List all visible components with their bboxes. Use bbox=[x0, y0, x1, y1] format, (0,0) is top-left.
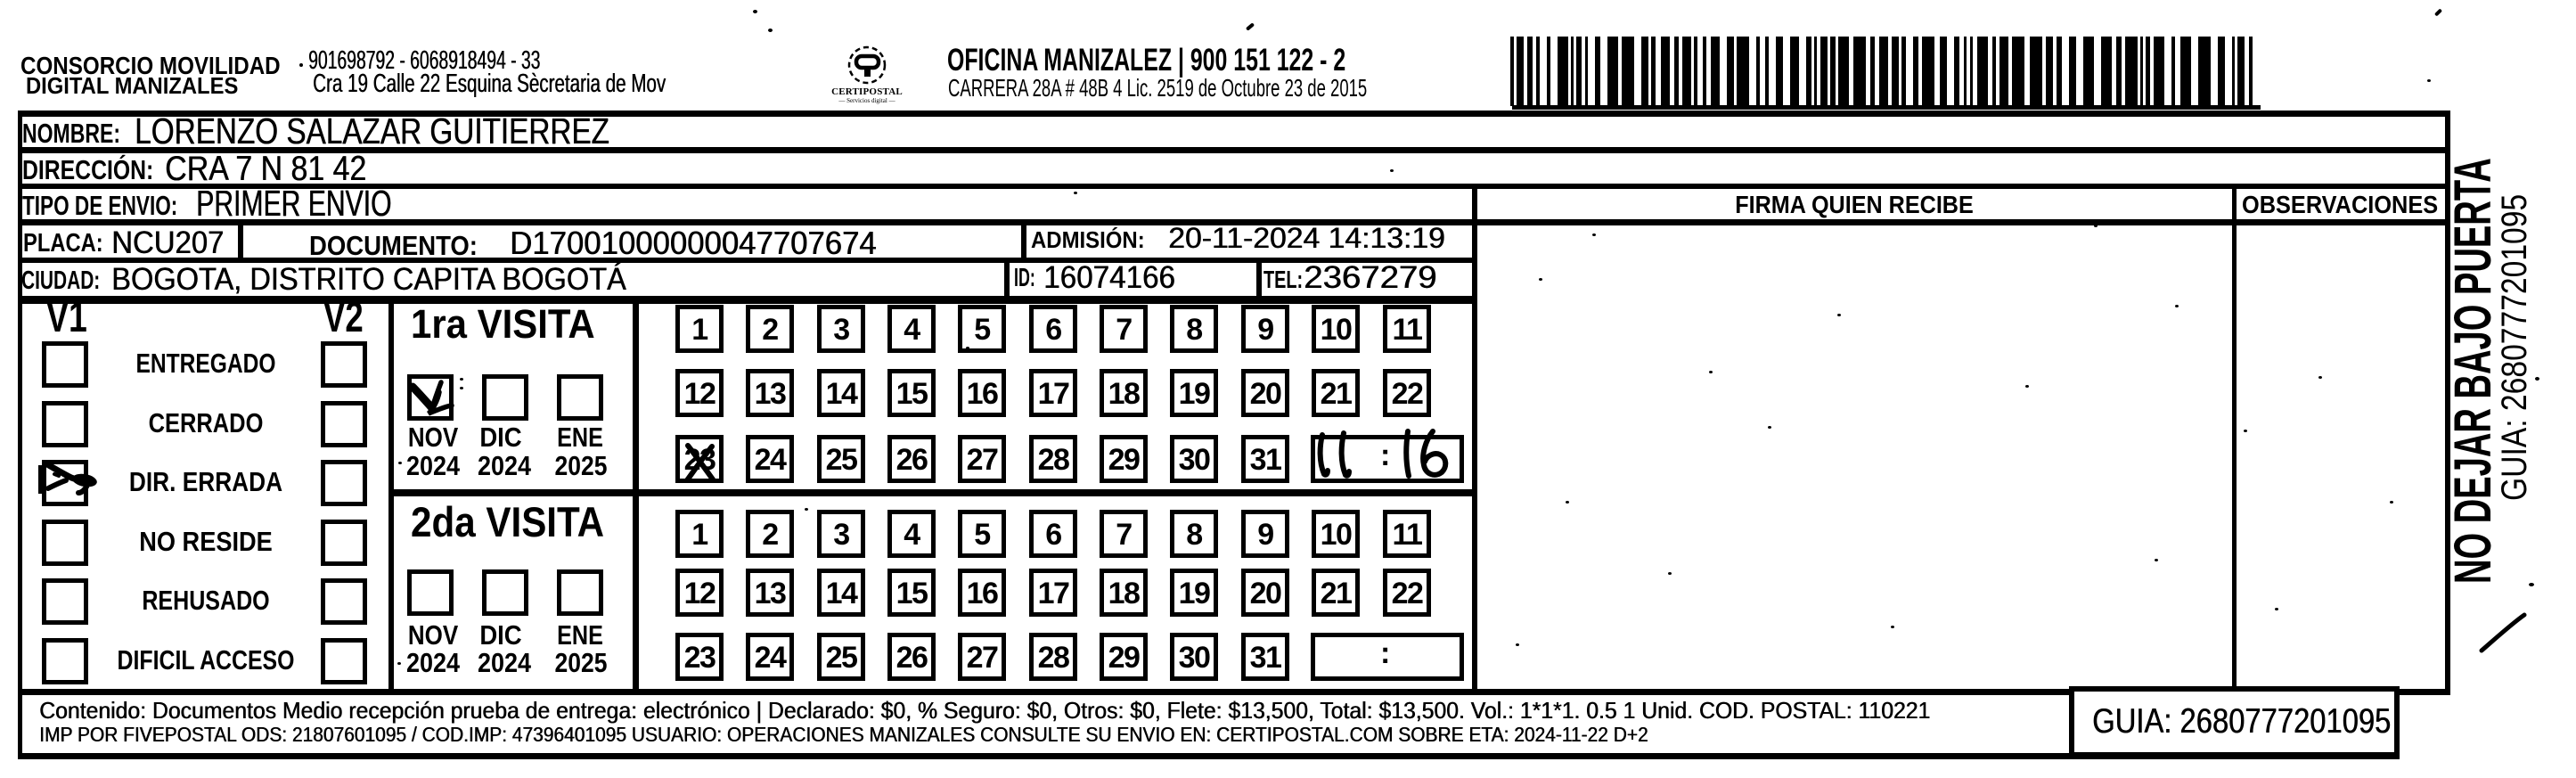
svg-text:— Servicios digital —: — Servicios digital — bbox=[838, 97, 895, 104]
svg-text:CERTIPOSTAL: CERTIPOSTAL bbox=[831, 86, 903, 97]
